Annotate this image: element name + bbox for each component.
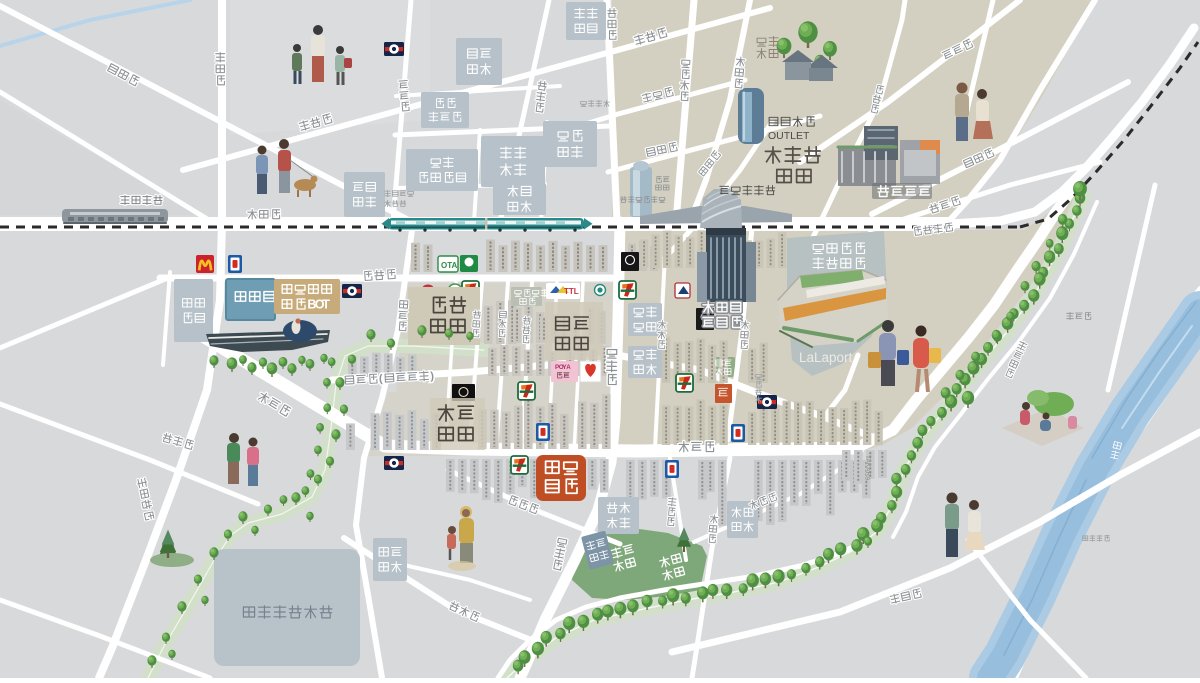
svg-text:T: T xyxy=(322,297,330,311)
svg-text:TTL: TTL xyxy=(564,287,579,296)
svg-text:OUTLET: OUTLET xyxy=(768,130,810,142)
svg-text:A: A xyxy=(566,364,571,371)
svg-text:TAKARA: TAKARA xyxy=(864,455,871,481)
svg-text:LaLaport: LaLaport xyxy=(799,350,853,365)
svg-text:OTA: OTA xyxy=(441,261,458,270)
